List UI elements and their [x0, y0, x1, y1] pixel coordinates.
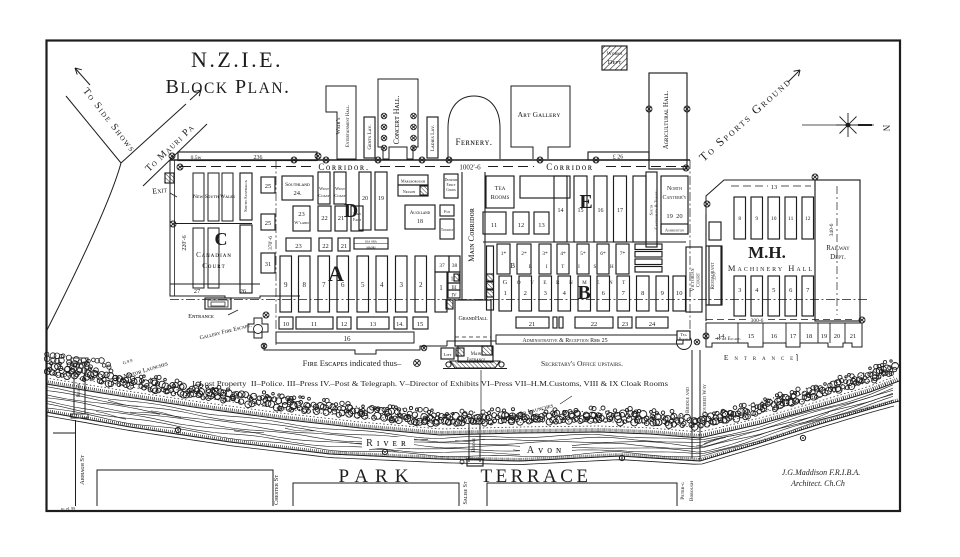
- svg-text:IV: IV: [451, 294, 457, 299]
- svg-text:1: 1: [439, 284, 443, 292]
- svg-text:PARK: PARK: [339, 466, 416, 487]
- svg-text:236: 236: [254, 155, 263, 161]
- svg-text:Fɪᴊɪ: Fɪᴊɪ: [444, 209, 450, 214]
- svg-text:Mᴀɪɴ Cᴏʀʀɪᴅᴏʀ: Mᴀɪɴ Cᴏʀʀɪᴅᴏʀ: [466, 207, 476, 262]
- svg-text:13: 13: [771, 184, 778, 191]
- svg-text:4: 4: [380, 281, 384, 289]
- svg-text:Nᴇᴡ Sᴏᴜᴛʜ Wᴀʟᴇs: Nᴇᴡ Sᴏᴜᴛʜ Wᴀʟᴇs: [193, 194, 235, 200]
- svg-text:9: 9: [661, 290, 664, 297]
- svg-text:13: 13: [538, 222, 545, 229]
- svg-text:31: 31: [265, 261, 272, 268]
- svg-text:17: 17: [617, 208, 623, 214]
- svg-text:21: 21: [341, 243, 348, 250]
- svg-text:Cᴏᴀsᴛ: Cᴏᴀsᴛ: [334, 193, 345, 198]
- svg-text:22: 22: [322, 243, 329, 250]
- svg-text:11: 11: [311, 321, 317, 328]
- svg-text:Lᴀᴅɪᴇs Lᴀᴠ.: Lᴀᴅɪᴇs Lᴀᴠ.: [430, 124, 436, 151]
- svg-text:27: 27: [194, 288, 201, 295]
- svg-text:38: 38: [452, 263, 458, 269]
- svg-text:7*: 7*: [620, 251, 626, 257]
- svg-text:25-0: 25-0: [712, 272, 717, 279]
- svg-text:Fᴇʀɴᴇʀʏ.: Fᴇʀɴᴇʀʏ.: [456, 137, 493, 147]
- svg-text:Wᴇɪʀ’s: Wᴇɪʀ’s: [336, 117, 342, 135]
- svg-text:Wᴇsᴛ: Wᴇsᴛ: [335, 186, 345, 191]
- svg-text:Lɪғᴛ: Lɪғᴛ: [444, 352, 452, 357]
- svg-text:18: 18: [417, 219, 423, 225]
- svg-text:Fɪʀᴇ Esᴄᴀᴘᴇs indicated thus–: Fɪʀᴇ Esᴄᴀᴘᴇs indicated thus–: [303, 358, 403, 368]
- svg-text:Railway: Railway: [826, 244, 850, 252]
- svg-text:19: 19: [378, 196, 384, 202]
- svg-text:Gᴇɴᴛs Lᴀᴠ.: Gᴇɴᴛs Lᴀᴠ.: [367, 124, 373, 150]
- svg-text:24.: 24.: [293, 190, 302, 197]
- svg-text:Cᴏʀʀɪᴅᴏʀ.: Cᴏʀʀɪᴅᴏʀ.: [318, 162, 369, 172]
- svg-text:BLOCK PLAN.: BLOCK PLAN.: [165, 76, 290, 98]
- svg-text:Secretary's Office upstairs.: Secretary's Office upstairs.: [541, 359, 623, 368]
- svg-text:Aᴠᴏɴ: Aᴠᴏɴ: [527, 445, 565, 456]
- svg-text:G o v e r n m e n t: G o v e r n m e n t: [503, 279, 630, 286]
- svg-text:Aʀᴍᴀɢʜ Sᴛ: Aʀᴍᴀɢʜ Sᴛ: [79, 455, 86, 485]
- svg-text:21: 21: [850, 333, 857, 340]
- svg-text:Gᴏᴏᴅs: Gᴏᴏᴅs: [446, 188, 456, 192]
- svg-text:Mᴀɪɴ: Mᴀɪɴ: [471, 352, 482, 357]
- svg-text:23: 23: [622, 321, 629, 328]
- svg-text:20: 20: [834, 333, 841, 340]
- svg-text:Aɢʀɪᴄᴜʟᴛᴜʀᴀʟ Hᴀʟʟ.: Aɢʀɪᴄᴜʟᴛᴜʀᴀʟ Hᴀʟʟ.: [662, 90, 670, 149]
- svg-text:3: 3: [399, 281, 403, 289]
- svg-text:9: 9: [755, 216, 758, 222]
- svg-text:20: 20: [362, 196, 368, 202]
- svg-text:26: 26: [240, 288, 247, 295]
- svg-text:Mᴀɴ: Mᴀɴ: [353, 211, 361, 216]
- svg-text:N: N: [881, 125, 891, 132]
- svg-text:TERRACE: TERRACE: [480, 466, 591, 487]
- svg-text:C: C: [215, 229, 228, 249]
- svg-text:Mᴀʀʟʙᴏʀᴏᴜɢʜ: Mᴀʀʟʙᴏʀᴏᴜɢʜ: [401, 179, 426, 184]
- svg-text:ᴋɪᴀ ᴏʀᴀ: ᴋɪᴀ ᴏʀᴀ: [365, 240, 377, 244]
- svg-text:Dept.: Dept.: [830, 253, 846, 261]
- svg-text:Eɴᴛᴇʀᴛᴀɪɴᴍᴇɴᴛ Hᴀʟʟ.: Eɴᴛᴇʀᴛᴀɪɴᴍᴇɴᴛ Hᴀʟʟ.: [346, 105, 351, 147]
- svg-text:Court: Court: [696, 272, 702, 287]
- svg-text:8: 8: [641, 290, 644, 297]
- svg-text:Aᴜᴄᴋʟᴀɴᴅ: Aᴜᴄᴋʟᴀɴᴅ: [410, 211, 431, 216]
- svg-text:2: 2: [419, 281, 423, 289]
- svg-text:I–Lost Property II–Police. II: I–Lost Property II–Police. III–Press IV.…: [192, 379, 668, 388]
- svg-text:4*: 4*: [560, 251, 566, 257]
- svg-text:Dᴜɴᴇᴅɪɴ: Dᴜɴᴇᴅɪɴ: [445, 178, 458, 182]
- svg-text:A: A: [328, 261, 344, 286]
- svg-text:Wᴏʀᴋs: Wᴏʀᴋs: [607, 51, 623, 57]
- svg-text:17: 17: [790, 333, 797, 340]
- svg-text:22: 22: [591, 321, 598, 328]
- svg-text:W’ʟᴀɴᴅ: W’ʟᴀɴᴅ: [294, 220, 309, 225]
- svg-text:23: 23: [295, 243, 302, 250]
- svg-text:Sᴀʟɪsᴇ Sᴛ: Sᴀʟɪsᴇ Sᴛ: [463, 481, 469, 504]
- svg-text:16: 16: [344, 335, 352, 343]
- svg-text:19 20: 19 20: [666, 213, 682, 220]
- svg-text:Cʜᴇsᴛᴇʀ Sᴛ: Cʜᴇsᴛᴇʀ Sᴛ: [273, 475, 280, 505]
- svg-text:Covered Way: Covered Way: [702, 384, 708, 416]
- svg-text:Cᴏʀʀɪᴅᴏʀ: Cᴏʀʀɪᴅᴏʀ: [546, 162, 593, 172]
- svg-text:Cᴀɴᴀᴅɪᴀɴ: Cᴀɴᴀᴅɪᴀɴ: [196, 251, 232, 259]
- svg-text:7: 7: [322, 281, 326, 289]
- svg-text:Eɴᴛʀᴀɴᴄᴇ: Eɴᴛʀᴀɴᴄᴇ: [188, 313, 214, 320]
- svg-text:11: 11: [788, 216, 794, 222]
- svg-text:GʀᴀɴᴅHᴀʟʟ: GʀᴀɴᴅHᴀʟʟ: [459, 316, 488, 322]
- svg-text:15: 15: [748, 333, 755, 340]
- svg-text:340-6: 340-6: [829, 223, 835, 236]
- svg-text:16: 16: [598, 208, 604, 214]
- svg-text:Bʀɪᴅɢᴇ: Bʀɪᴅɢᴇ: [472, 438, 477, 452]
- svg-text:Tᴏᴜʀɪsᴛ: Tᴏᴜʀɪsᴛ: [441, 228, 454, 232]
- svg-text:Room: Room: [679, 337, 689, 342]
- svg-text:Canterbury & Timaru: Canterbury & Timaru: [654, 190, 659, 230]
- svg-text:21: 21: [529, 321, 536, 328]
- svg-text:1002′-6: 1002′-6: [459, 164, 481, 172]
- svg-text:12: 12: [341, 321, 348, 328]
- svg-text:Architect. Ch.Ch: Architect. Ch.Ch: [790, 479, 845, 488]
- svg-text:1: 1: [504, 290, 507, 297]
- svg-text:2: 2: [524, 290, 527, 297]
- svg-text:E: E: [579, 191, 592, 213]
- svg-text:Cᴏɴᴄᴇʀᴛ Hᴀʟʟ.: Cᴏɴᴄᴇʀᴛ Hᴀʟʟ.: [392, 96, 401, 145]
- svg-text:12: 12: [805, 216, 811, 222]
- svg-text:Nᴇʟsᴏɴ: Nᴇʟsᴏɴ: [403, 189, 416, 194]
- svg-text:10: 10: [676, 290, 683, 297]
- svg-text:6*: 6*: [600, 251, 606, 257]
- svg-text:3*: 3*: [542, 251, 548, 257]
- svg-text:sc. el. 99: sc. el. 99: [61, 506, 75, 511]
- svg-text:8: 8: [738, 216, 741, 222]
- svg-text:Fᴀᴄᴛ: Fᴀᴄᴛ: [353, 217, 361, 222]
- svg-text:Tea: Tea: [495, 185, 506, 192]
- svg-text:10: 10: [283, 321, 290, 328]
- svg-text:3: 3: [544, 290, 547, 297]
- svg-text:9: 9: [284, 281, 288, 289]
- svg-text:Bʀɪᴅɢᴇ: Bʀɪᴅɢᴇ: [77, 383, 82, 397]
- svg-text:19: 19: [821, 333, 828, 340]
- svg-text:1*: 1*: [501, 251, 507, 257]
- svg-text:Fᴀɴᴄʏ: Fᴀɴᴄʏ: [446, 183, 455, 187]
- svg-text:370′-6: 370′-6: [268, 236, 274, 250]
- svg-text:Cᴏᴜʀᴛ: Cᴏᴜʀᴛ: [202, 262, 225, 270]
- svg-text:➔Fire Escape.: ➔Fire Escape.: [715, 337, 741, 342]
- svg-text:11: 11: [491, 222, 497, 229]
- svg-text:Bᴏʀᴏᴜɢʜ: Bᴏʀᴏᴜɢʜ: [689, 481, 695, 501]
- svg-text:Pᴇᴛᴇʀ-ɢ: Pᴇᴛᴇʀ-ɢ: [680, 482, 686, 500]
- svg-text:ᴍᴀᴏʀɪ: ᴍᴀᴏʀɪ: [366, 246, 375, 250]
- svg-text:Ashburton: Ashburton: [665, 228, 685, 233]
- svg-text:18: 18: [806, 333, 813, 340]
- svg-text:B r i t i s h: B r i t i s h: [510, 262, 619, 270]
- svg-text:3: 3: [738, 287, 741, 294]
- svg-text:25: 25: [265, 183, 272, 190]
- svg-text:25: 25: [265, 220, 272, 227]
- svg-text:16: 16: [771, 333, 778, 340]
- svg-text:13: 13: [370, 321, 377, 328]
- svg-text:N.Z.I.E.: N.Z.I.E.: [191, 47, 283, 72]
- svg-text:14: 14: [558, 208, 564, 214]
- svg-text:Rɪᴠᴇʀ: Rɪᴠᴇʀ: [366, 438, 410, 449]
- svg-text:37: 37: [439, 263, 445, 269]
- svg-text:14.: 14.: [396, 322, 404, 328]
- svg-text:2*: 2*: [521, 251, 527, 257]
- svg-text:Bridge and: Bridge and: [685, 387, 691, 413]
- svg-text:Canterb'y: Canterb'y: [663, 195, 687, 201]
- svg-text:0.5ᴡ: 0.5ᴡ: [191, 155, 202, 161]
- svg-text:Wᴇsᴛ: Wᴇsᴛ: [319, 186, 329, 191]
- svg-text:Cᴏᴀsᴛ: Cᴏᴀsᴛ: [318, 193, 329, 198]
- svg-text:Dᴇᴘᴛ: Dᴇᴘᴛ: [608, 59, 622, 66]
- svg-text:B: B: [577, 282, 590, 304]
- svg-text:5: 5: [361, 281, 365, 289]
- svg-text:22: 22: [321, 215, 328, 222]
- svg-text:Machinery Hall: Machinery Hall: [728, 263, 814, 273]
- svg-text:5: 5: [772, 287, 775, 294]
- svg-text:Sᴏᴜᴛʜʟᴀɴᴅ: Sᴏᴜᴛʜʟᴀɴᴅ: [285, 182, 310, 188]
- svg-text:North: North: [667, 186, 682, 192]
- svg-text:E n t r a n c e⌉: E n t r a n c e⌉: [724, 353, 800, 362]
- svg-text:Rooms: Rooms: [491, 194, 510, 201]
- svg-text:Administrative & Reception Rᴍs: Administrative & Reception Rᴍs 25: [522, 338, 607, 344]
- svg-text:220′-6: 220′-6: [182, 235, 188, 250]
- svg-text:8: 8: [302, 281, 306, 289]
- svg-text:M.H.: M.H.: [748, 243, 786, 262]
- svg-text:23: 23: [298, 211, 305, 218]
- svg-text:15: 15: [417, 321, 424, 328]
- svg-text:Aʀᴛ Gᴀʟʟᴇʀʏ: Aʀᴛ Gᴀʟʟᴇʀʏ: [518, 110, 561, 119]
- svg-text:24: 24: [649, 321, 656, 328]
- svg-text:Sᴏᴜᴛʜ Aᴜsᴛʀᴀʟɪᴀ: Sᴏᴜᴛʜ Aᴜsᴛʀᴀʟɪᴀ: [243, 179, 248, 211]
- svg-text:10: 10: [771, 216, 777, 222]
- svg-text:5*: 5*: [580, 251, 586, 257]
- svg-text:1: 1: [451, 277, 454, 283]
- svg-text:12: 12: [518, 222, 525, 229]
- svg-text:J.G.Maddison F.R.I.B.A.: J.G.Maddison F.R.I.B.A.: [782, 468, 861, 477]
